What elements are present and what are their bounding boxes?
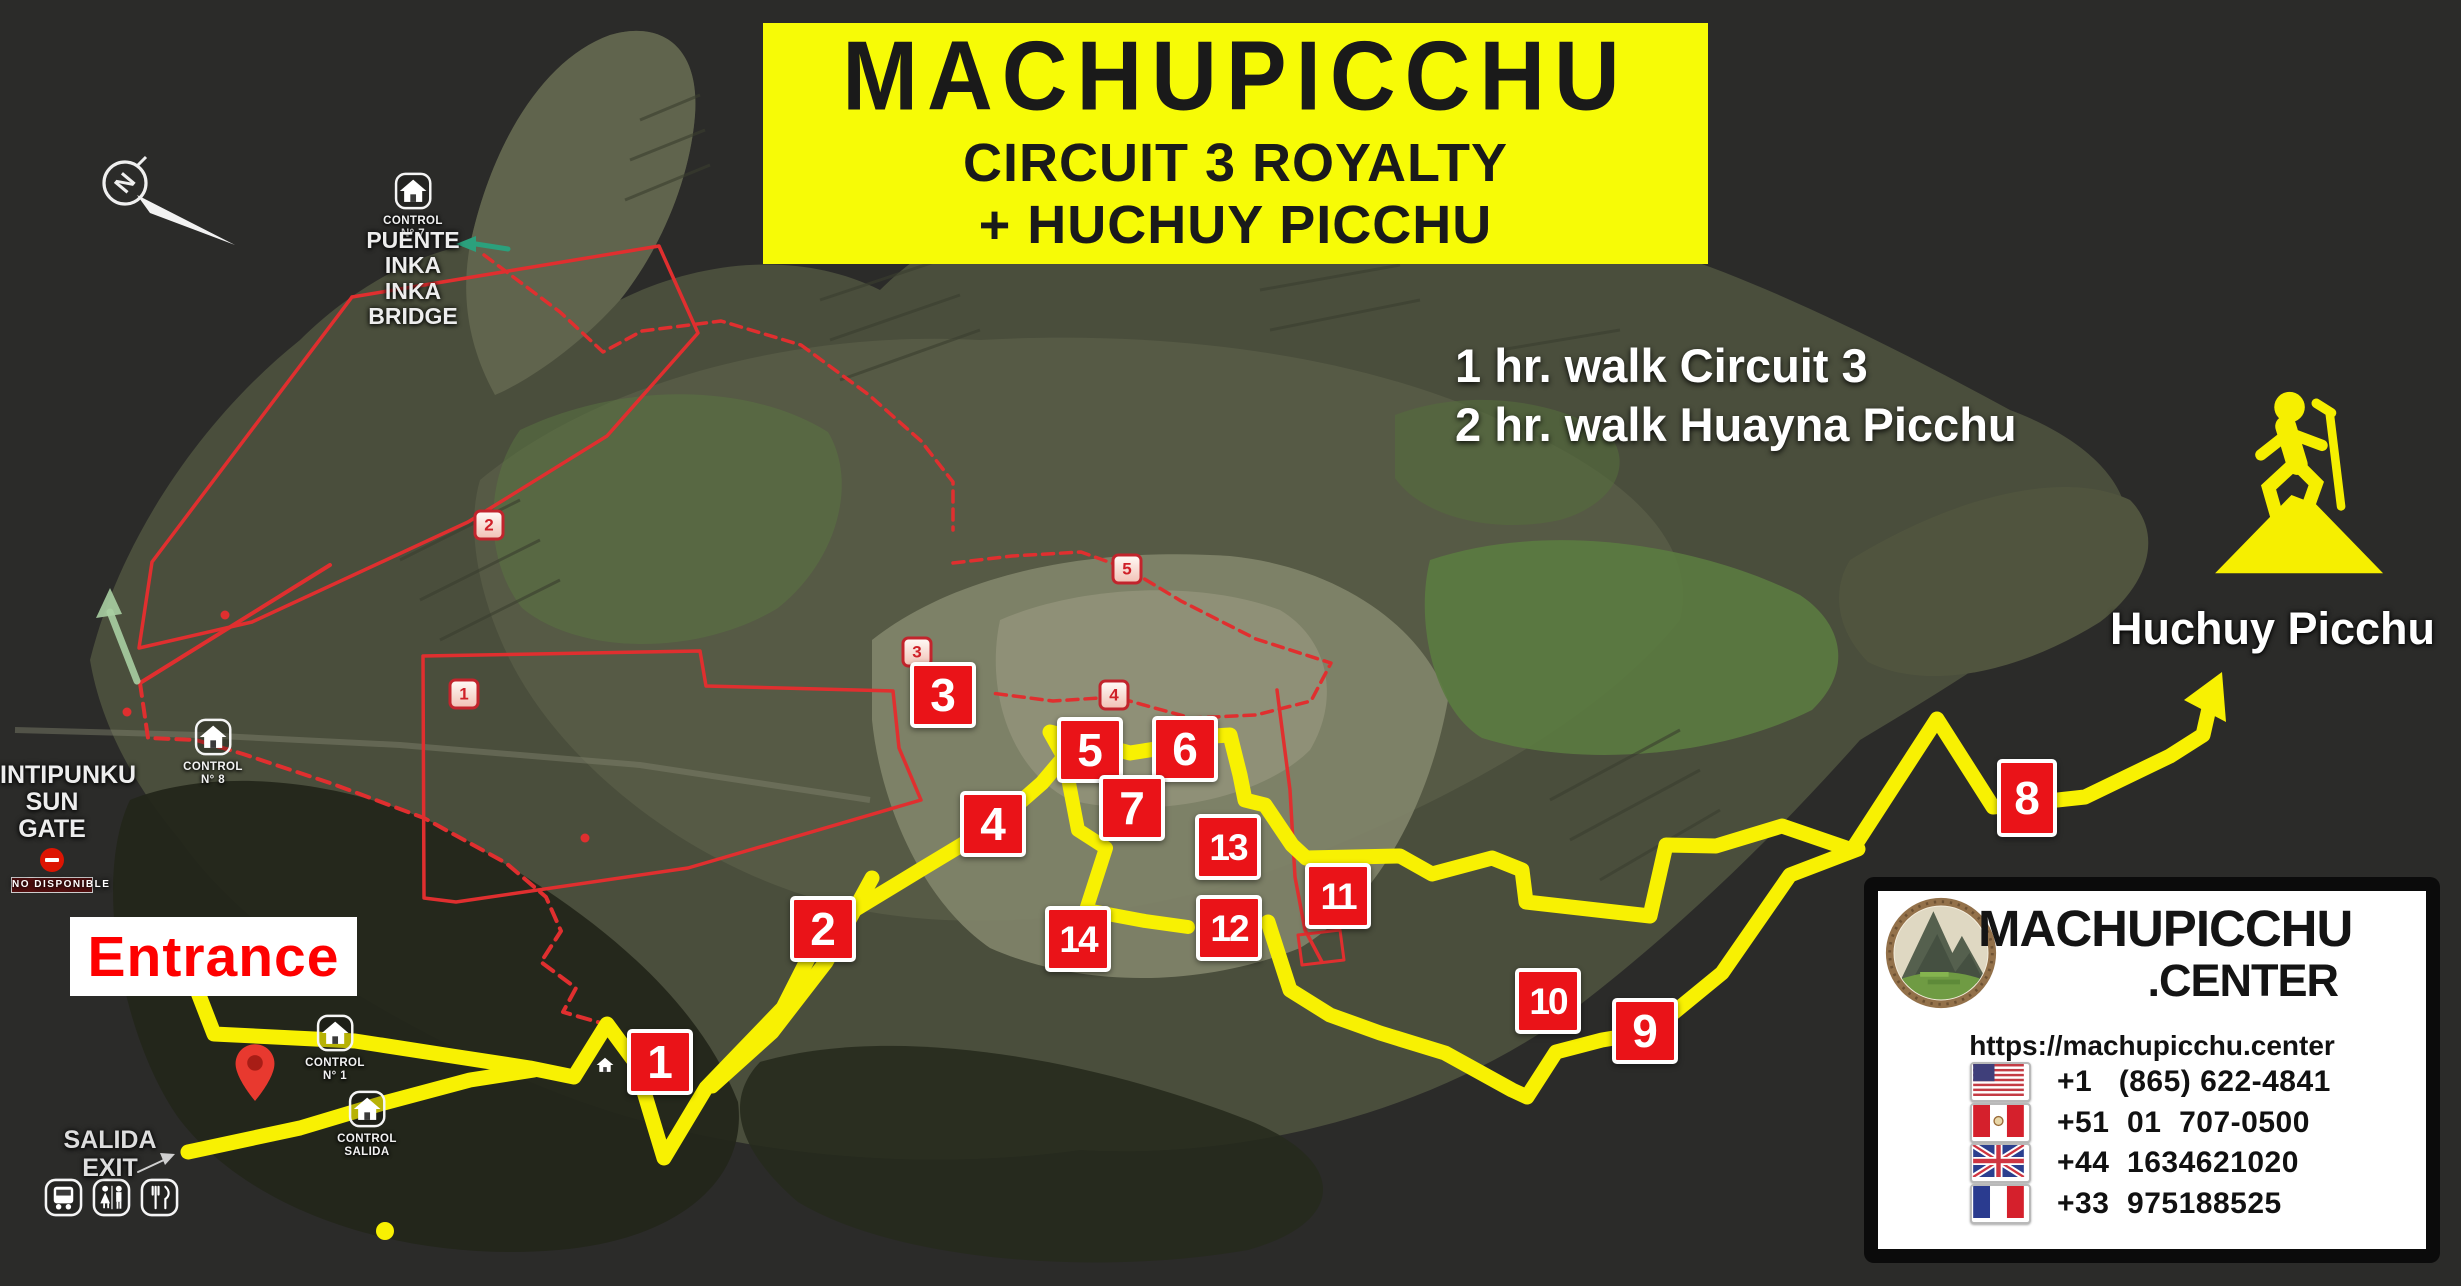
title-banner: MACHUPICCHU CIRCUIT 3 ROYALTY + HUCHUY P… — [763, 23, 1708, 264]
website-link[interactable]: https://machupicchu.center — [1878, 1030, 2426, 1062]
phone-row-gb: +44 1634621020 — [1970, 1143, 2299, 1183]
control-1-label: CONTROLN° 1 — [305, 1057, 365, 1083]
red-dot — [221, 611, 230, 620]
route-marker-3: 3 — [910, 662, 976, 728]
phone-row-fr: +33 975188525 — [1970, 1184, 2282, 1224]
puente-inka-label: PUENTE INKA INKA BRIDGE — [343, 228, 483, 329]
fr-flag-icon — [1970, 1184, 2031, 1224]
status-badge: NO DISPONIBLE — [11, 877, 93, 893]
exit-direction-arrowhead — [96, 588, 122, 618]
salida-pointer-head — [160, 1153, 175, 1165]
brand-name: MACHUPICCHU .CENTER — [1978, 903, 2338, 1003]
route-marker-13: 13 — [1195, 814, 1261, 880]
intipunku-sun-gate-label: INTIPUNKU SUN GATE NO DISPONIBLE — [0, 762, 104, 893]
control-8-label: CONTROLN° 8 — [183, 761, 243, 787]
pe-flag-icon — [1970, 1103, 2031, 1143]
salida-exit-label: SALIDA EXIT — [58, 1126, 162, 1182]
route-marker-2: 2 — [790, 896, 856, 962]
waypoint-badge-2: 2 — [474, 510, 505, 541]
page-title: MACHUPICCHU — [842, 27, 1629, 125]
walk-times: 1 hr. walk Circuit 3 2 hr. walk Huayna P… — [1455, 336, 2017, 454]
waypoint-badge-5: 5 — [1112, 554, 1143, 585]
phone-row-pe: +51 01 707-0500 — [1970, 1103, 2310, 1143]
phone-number: +44 1634621020 — [2057, 1146, 2299, 1180]
route-marker-4: 4 — [960, 791, 1026, 857]
phone-number: +1 (865) 622-4841 — [2057, 1065, 2331, 1099]
gb-flag-icon — [1970, 1143, 2031, 1183]
contact-card: MACHUPICCHU .CENTER https://machupicchu.… — [1864, 877, 2440, 1263]
control-salida-label: CONTROLSALIDA — [337, 1133, 397, 1159]
route-marker-9: 9 — [1612, 998, 1678, 1064]
route-marker-12: 12 — [1196, 895, 1262, 961]
map-pin-icon — [234, 1042, 276, 1109]
restaurant-icon — [140, 1178, 179, 1222]
facilities-icons — [44, 1178, 179, 1222]
restroom-icon — [92, 1178, 131, 1222]
route-marker-11: 11 — [1305, 863, 1371, 929]
bus-icon — [44, 1178, 83, 1222]
hiker-icon — [2196, 386, 2406, 586]
route-marker-8: 8 — [1997, 759, 2057, 837]
phone-row-us: +1 (865) 622-4841 — [1970, 1062, 2331, 1102]
route-marker-5: 5 — [1057, 717, 1123, 783]
page-subtitle-2: + HUCHUY PICCHU — [979, 194, 1493, 256]
route-marker-7: 7 — [1099, 775, 1165, 841]
exit-direction-arrow — [110, 612, 137, 681]
route-marker-14: 14 — [1045, 906, 1111, 972]
phone-number: +33 975188525 — [2057, 1187, 2282, 1221]
red-dot — [581, 834, 590, 843]
phone-number: +51 01 707-0500 — [2057, 1106, 2310, 1140]
route-marker-1: 1 — [627, 1029, 693, 1095]
red-trail-dashed — [484, 255, 953, 530]
waypoint-badge-4: 4 — [1099, 680, 1130, 711]
machu-picchu-map: N CONTROLN° 7CONTROLN° 8CONTROLN° 1CONTR… — [0, 0, 2461, 1286]
compass-north-icon: N — [93, 150, 258, 267]
page-subtitle-1: CIRCUIT 3 ROYALTY — [963, 132, 1508, 194]
red-dot — [123, 708, 132, 717]
huchuy-picchu-label: Huchuy Picchu — [2100, 603, 2445, 655]
control-1-icon: CONTROLN° 1 — [305, 1014, 365, 1083]
us-flag-icon — [1970, 1062, 2031, 1102]
route-marker-6: 6 — [1152, 716, 1218, 782]
compass-n: N — [109, 168, 141, 199]
control-8-icon: CONTROLN° 8 — [183, 718, 243, 787]
no-entry-icon — [40, 848, 64, 872]
waypoint-badge-1: 1 — [449, 679, 480, 710]
control-salida-icon: CONTROLSALIDA — [337, 1090, 397, 1159]
red-trail-loop-1 — [423, 651, 921, 902]
house-icon — [593, 1053, 617, 1082]
red-trail — [140, 565, 330, 683]
trail-dot — [376, 1222, 394, 1240]
route-marker-10: 10 — [1515, 968, 1581, 1034]
entrance-label: Entrance — [70, 917, 357, 996]
